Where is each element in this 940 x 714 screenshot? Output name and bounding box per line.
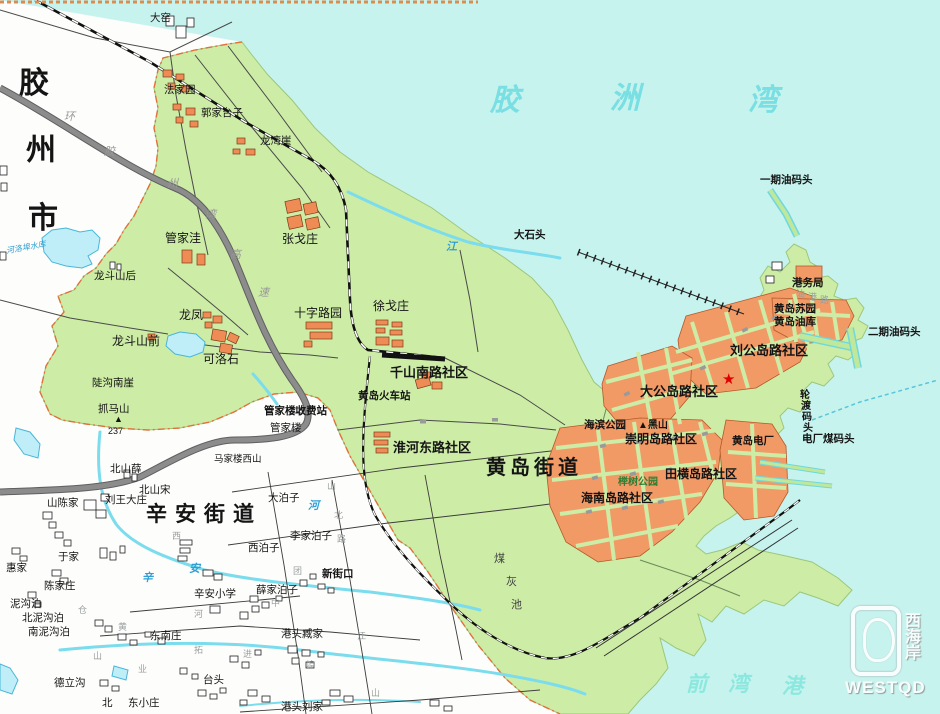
map-label: 拓 bbox=[194, 646, 203, 655]
map-label: 田横岛路社区 bbox=[665, 468, 737, 480]
map-label: 辛安小学 bbox=[194, 589, 236, 600]
map-label: 港头臧家 bbox=[281, 629, 323, 640]
map-label: 大石头 bbox=[514, 230, 546, 241]
map-canvas: 胶州市胶洲湾前湾港黄岛街道辛安街道刘公岛路社区大公岛路社区崇明岛路社区田横岛路社… bbox=[0, 0, 940, 714]
map-label: 北泥沟泊 bbox=[22, 613, 64, 624]
map-label: 陡沟南崖 bbox=[92, 378, 134, 389]
map-label: 辛 bbox=[142, 573, 153, 584]
map-label: 市 bbox=[28, 204, 58, 234]
map-label: 黄岛油库 bbox=[774, 317, 816, 328]
westqd-logo-icon bbox=[851, 606, 901, 676]
map-label: 马家楼西山 bbox=[214, 455, 262, 465]
map-label: 业 bbox=[138, 665, 147, 674]
map-label: ▲黑山 bbox=[638, 421, 668, 431]
map-label: 池 bbox=[511, 600, 522, 611]
map-label: 高 bbox=[230, 250, 241, 261]
map-label: 北山薛 bbox=[110, 464, 142, 475]
watermark: 西海岸 WESTQD bbox=[845, 604, 937, 700]
map-label: 江 bbox=[446, 242, 457, 253]
map-label: 中 bbox=[271, 599, 280, 608]
map-label: 进 bbox=[243, 650, 252, 659]
map-label: 大泊子 bbox=[268, 493, 300, 504]
map-label: 北 bbox=[334, 511, 343, 520]
map-label: 管家楼收费站 bbox=[264, 406, 327, 417]
map-label: 南泥沟泊 bbox=[28, 627, 70, 638]
map-label: 抓马山 bbox=[98, 404, 130, 415]
map-label: 头 bbox=[803, 424, 813, 434]
map-label: 东南庄 bbox=[150, 631, 182, 642]
map-label: 龙斗山后 bbox=[94, 271, 136, 282]
map-label: 路 bbox=[820, 296, 829, 305]
map-label: 山 bbox=[327, 482, 336, 491]
map-label: 湾 bbox=[728, 674, 749, 695]
map-label: 洲 bbox=[610, 84, 640, 114]
map-label: 电厂煤码头 bbox=[802, 434, 855, 445]
map-label: 山陈家 bbox=[47, 498, 79, 509]
map-label: 仓 bbox=[78, 606, 87, 615]
map-label: 惠家 bbox=[6, 563, 27, 574]
map-label: 千山南路社区 bbox=[390, 366, 468, 379]
map-label: 张戈庄 bbox=[282, 233, 318, 245]
map-label: 刘王大庄 bbox=[105, 495, 147, 506]
map-label: 安 bbox=[189, 564, 200, 575]
map-label: 台头 bbox=[203, 675, 224, 686]
map-label: 油 bbox=[796, 290, 805, 299]
map-label: 港务局 bbox=[792, 278, 824, 289]
map-label: 州 bbox=[26, 136, 56, 166]
westqd-logo-blob bbox=[863, 618, 895, 662]
map-label: 江 bbox=[357, 632, 366, 641]
map-label: 西 bbox=[172, 532, 181, 541]
map-label: 湾 bbox=[205, 210, 216, 221]
map-label: 可洛石 bbox=[203, 353, 239, 365]
map-label: 徐戈庄 bbox=[373, 300, 409, 312]
map-label: 黄 bbox=[118, 623, 127, 632]
map-label: 码 bbox=[802, 413, 812, 423]
map-label: ★ bbox=[722, 372, 735, 387]
watermark-brand: WESTQD bbox=[845, 678, 926, 698]
map-label: 胶 bbox=[490, 86, 520, 116]
map-label: 泥沟泊 bbox=[10, 599, 42, 610]
map-label: 管家洼 bbox=[165, 232, 201, 244]
map-label: 北 bbox=[102, 698, 113, 709]
map-label: 西泊子 bbox=[248, 543, 280, 554]
map-label: 海南岛路社区 bbox=[581, 492, 653, 504]
map-label: 路 bbox=[337, 535, 346, 544]
map-label: 崇明岛路社区 bbox=[625, 433, 697, 445]
map-label: 海滨公园 bbox=[584, 420, 626, 431]
map-label: 新街口 bbox=[322, 569, 354, 580]
map-label: 湾 bbox=[748, 86, 778, 116]
map-label: 管家楼 bbox=[270, 423, 302, 434]
map-label: 辛安街道 bbox=[146, 504, 262, 525]
map-label: 十字路园 bbox=[294, 307, 342, 319]
map-label: 刘公岛路社区 bbox=[730, 344, 808, 357]
map-label: 山 bbox=[371, 689, 380, 698]
map-label: 河 bbox=[194, 610, 203, 619]
map-label: 榉树公园 bbox=[618, 478, 658, 488]
map-label: 胶 bbox=[104, 147, 115, 158]
map-label: 于家 bbox=[58, 552, 79, 563]
map-label: 大公岛路社区 bbox=[640, 385, 718, 398]
map-label: 法家园 bbox=[164, 85, 196, 96]
map-label: 东小庄 bbox=[128, 698, 160, 709]
map-label: 港头刘家 bbox=[281, 702, 323, 713]
map-label: 一期油码头 bbox=[760, 175, 813, 186]
map-label: 薛家泊子 bbox=[256, 585, 298, 596]
map-label: 埠 bbox=[306, 661, 315, 670]
map-label: 灰 bbox=[506, 577, 517, 588]
map-label: 团 bbox=[293, 567, 302, 576]
map-label: 河 bbox=[308, 501, 319, 512]
map-label: 港 bbox=[808, 293, 817, 302]
map-label: 州 bbox=[167, 179, 178, 190]
map-label: 港 bbox=[782, 676, 803, 697]
map-label: 山 bbox=[93, 652, 102, 661]
map-label: 黄岛电厂 bbox=[732, 436, 774, 447]
watermark-chinese: 西海岸 bbox=[903, 612, 921, 660]
map-label: 李家泊子 bbox=[290, 531, 332, 542]
map-label: 龙凤 bbox=[179, 309, 203, 321]
map-label: 轮 bbox=[800, 391, 810, 401]
map-label: 大窑 bbox=[150, 13, 171, 24]
map-label: 黄岛街道 bbox=[486, 458, 582, 478]
map-label: 速 bbox=[258, 288, 269, 299]
map-label: 二期油码头 bbox=[868, 327, 921, 338]
map-label: 煤 bbox=[494, 554, 505, 565]
map-label: 237 bbox=[108, 427, 123, 436]
map-label: 郭家台子 bbox=[201, 108, 243, 119]
map-label: ▲ bbox=[114, 415, 123, 424]
map-label: 黄岛火车站 bbox=[358, 391, 411, 402]
map-label: 龙斗山前 bbox=[112, 335, 160, 347]
map-label: 胶 bbox=[19, 69, 49, 99]
map-label: 前 bbox=[686, 674, 707, 695]
map-label: 淮河东路社区 bbox=[393, 441, 471, 454]
map-label: 德立沟 bbox=[54, 678, 86, 689]
map-label: 黄岛苏园 bbox=[774, 304, 816, 315]
map-label: 陈家庄 bbox=[44, 581, 76, 592]
map-label: 渡 bbox=[801, 402, 811, 412]
map-label: 环 bbox=[64, 112, 75, 123]
map-label: 龙湾崖 bbox=[260, 136, 292, 147]
